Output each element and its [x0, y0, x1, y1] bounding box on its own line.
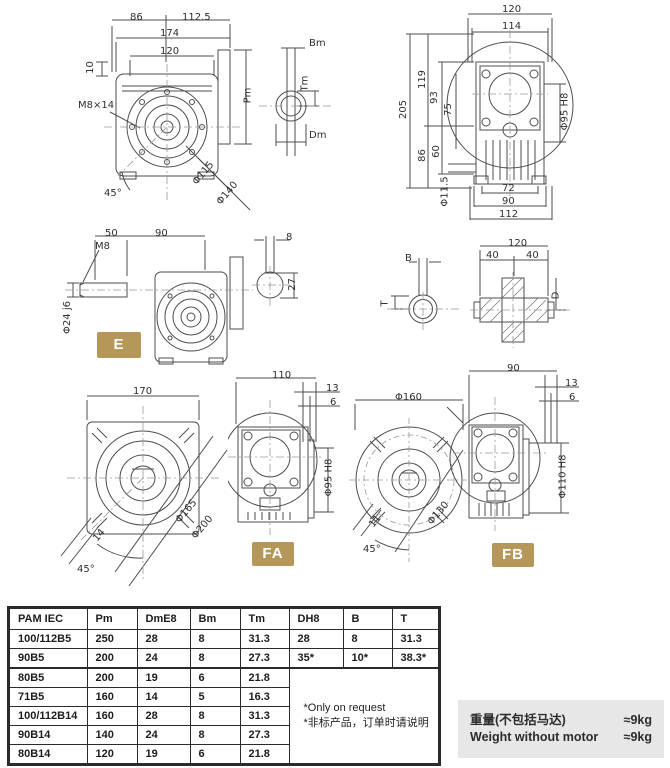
weight-label-en: Weight without motor — [470, 729, 598, 746]
label-e-badge: E — [97, 332, 141, 358]
dim-tm: Tm — [299, 76, 310, 92]
angle-45: 45° — [363, 544, 381, 555]
thread-label: M8×14 — [78, 100, 114, 111]
rear-flange-view: 86 112.5 174 120 10 M8×14 Pm 45° Φ115 Φ1… — [78, 12, 273, 226]
dim-72: 72 — [502, 183, 515, 194]
dim-bm: Bm — [309, 38, 326, 49]
fb-view: 90 13 6 Φ110 H8 FB — [445, 363, 670, 575]
table-cell: 200 — [87, 649, 137, 669]
table-cell: 24 — [137, 726, 190, 745]
motor-shaft-end-drawing — [253, 38, 368, 163]
dim-170: 170 — [133, 386, 152, 397]
table-cell: 27.3 — [240, 649, 289, 669]
table-cell: 160 — [87, 707, 137, 726]
dim-114: 114 — [502, 21, 521, 32]
shaft-24j6: Φ24 j6 — [62, 301, 73, 334]
pam-dimensions-table: PAM IEC Pm DmE8 Bm Tm DH8 B T 100/112B5 … — [8, 607, 440, 765]
dim-174: 174 — [160, 28, 179, 39]
label-fa-badge: FA — [252, 542, 294, 566]
catalog-page: 86 112.5 174 120 10 M8×14 Pm 45° Φ115 Φ1… — [0, 0, 670, 768]
table-cell: 19 — [137, 745, 190, 765]
dim-10: 10 — [85, 61, 96, 74]
side-view-e-drawing — [55, 228, 270, 370]
table-cell: 5 — [190, 688, 240, 707]
dim-13: 13 — [565, 378, 578, 389]
table-cell: 31.3 — [240, 707, 289, 726]
table-cell: 10* — [343, 649, 392, 669]
motor-face-drawing — [390, 4, 670, 226]
dim-205: 205 — [398, 100, 409, 119]
weight-label-cn: 重量(不包括马达) — [470, 712, 566, 729]
thread-m8: M8 — [95, 241, 110, 252]
table-cell: 28 — [137, 707, 190, 726]
dim-6: 6 — [569, 392, 575, 403]
dim-75: 75 — [443, 103, 454, 116]
table-cell: 38.3* — [392, 649, 439, 669]
table-cell: 16.3 — [240, 688, 289, 707]
table-cell: 27.3 — [240, 726, 289, 745]
header-t: T — [392, 608, 439, 630]
table-row: 100/112B5 250 28 8 31.3 28 8 31.3 — [9, 630, 439, 649]
table-row: 80B5 200 19 6 21.8 *Only on request *非标产… — [9, 668, 439, 688]
dim-d: D — [550, 292, 561, 300]
motor-shaft-end-view: Bm Tm Dm — [253, 38, 368, 163]
table-cell: 8 — [190, 707, 240, 726]
shaft-cross-section-view: 120 40 40 D — [468, 238, 573, 353]
table-cell: 90B5 — [9, 649, 87, 669]
table-cell: 19 — [137, 668, 190, 688]
table-cell: 100/112B5 — [9, 630, 87, 649]
dim-50: 50 — [105, 228, 118, 239]
weight-info-box: 重量(不包括马达) ≈9kg Weight without motor ≈9kg — [458, 700, 664, 758]
table-notes-cell: *Only on request *非标产品，订单时请说明 — [289, 668, 439, 764]
header-pam-iec: PAM IEC — [9, 608, 87, 630]
table-header-row: PAM IEC Pm DmE8 Bm Tm DH8 B T — [9, 608, 439, 630]
dim-86: 86 — [417, 149, 428, 162]
bore-end-view: B T — [383, 252, 468, 344]
dim-119: 119 — [417, 70, 428, 89]
table-cell: 250 — [87, 630, 137, 649]
header-dh8: DH8 — [289, 608, 343, 630]
table-cell: 6 — [190, 745, 240, 765]
header-pm: Pm — [87, 608, 137, 630]
dim-112-5: 112.5 — [182, 12, 211, 23]
table-cell: 8 — [190, 630, 240, 649]
table-row: 90B5 200 24 8 27.3 35* 10* 38.3* — [9, 649, 439, 669]
output-flange-view: 170 Φ165 Φ200 14 45° — [35, 378, 250, 590]
table-cell: 35* — [289, 649, 343, 669]
angle-45: 45° — [77, 564, 95, 575]
dim-40b: 40 — [526, 250, 539, 261]
table-cell: 120 — [87, 745, 137, 765]
table-cell: 90B14 — [9, 726, 87, 745]
header-tm: Tm — [240, 608, 289, 630]
table-cell: 8 — [343, 630, 392, 649]
dim-110: 110 — [272, 370, 291, 381]
flange-od-160: Φ160 — [395, 392, 422, 403]
bore-110h8: Φ110 H8 — [558, 454, 569, 498]
table-cell: 80B5 — [9, 668, 87, 688]
motor-face-view: 120 114 205 119 86 93 60 75 Φ11.5 Φ95 H8… — [390, 4, 670, 226]
table-cell: 28 — [289, 630, 343, 649]
note-non-standard-cn: *非标产品，订单时请说明 — [304, 716, 439, 731]
weight-value-en: ≈9kg — [624, 729, 652, 746]
bore-95h8: Φ95 H8 — [323, 459, 334, 497]
dim-dm: Dm — [309, 130, 326, 141]
dim-112: 112 — [499, 209, 518, 220]
label-fb-badge: FB — [492, 543, 534, 567]
dim-120: 120 — [508, 238, 527, 249]
dim-6: 6 — [330, 397, 336, 408]
dim-90: 90 — [502, 196, 515, 207]
table-cell: 140 — [87, 726, 137, 745]
dim-90: 90 — [155, 228, 168, 239]
table-cell: 31.3 — [392, 630, 439, 649]
table-cell: 160 — [87, 688, 137, 707]
table-cell: 14 — [137, 688, 190, 707]
shaft-section-small-view: 8 27 — [250, 232, 350, 337]
table-cell: 100/112B14 — [9, 707, 87, 726]
table-cell: 6 — [190, 668, 240, 688]
dim-b: B — [405, 253, 412, 264]
weight-row-en: Weight without motor ≈9kg — [470, 729, 652, 746]
dim-27: 27 — [287, 278, 298, 291]
dim-86: 86 — [130, 12, 143, 23]
hole-11-5: Φ11.5 — [440, 176, 451, 206]
shaft-section-small-drawing — [250, 232, 350, 337]
table-cell: 200 — [87, 668, 137, 688]
dim-93: 93 — [429, 91, 440, 104]
table-cell: 71B5 — [9, 688, 87, 707]
note-only-on-request: *Only on request — [304, 701, 439, 716]
weight-row-cn: 重量(不包括马达) ≈9kg — [470, 712, 652, 729]
angle-45: 45° — [104, 188, 122, 199]
dim-8: 8 — [286, 232, 292, 243]
header-b: B — [343, 608, 392, 630]
table-cell: 21.8 — [240, 745, 289, 765]
header-bm: Bm — [190, 608, 240, 630]
dim-40a: 40 — [486, 250, 499, 261]
dim-90: 90 — [507, 363, 520, 374]
table-cell: 80B14 — [9, 745, 87, 765]
table-cell: 8 — [190, 649, 240, 669]
table-cell: 24 — [137, 649, 190, 669]
dim-t: T — [380, 300, 391, 306]
table-cell: 8 — [190, 726, 240, 745]
output-flange-drawing — [35, 378, 250, 590]
side-view-e: 50 90 M8 Φ24 j6 E — [55, 228, 270, 370]
dim-120: 120 — [160, 46, 179, 57]
bore-95h8: Φ95 H8 — [559, 93, 570, 131]
bore-end-drawing — [383, 252, 468, 344]
table-cell: 21.8 — [240, 668, 289, 688]
dim-pm: Pm — [242, 88, 253, 104]
dim-120: 120 — [502, 4, 521, 15]
table-cell: 28 — [137, 630, 190, 649]
table-cell: 31.3 — [240, 630, 289, 649]
dim-13: 13 — [326, 383, 339, 394]
dim-60: 60 — [431, 145, 442, 158]
weight-value-cn: ≈9kg — [624, 712, 652, 729]
header-dme8: DmE8 — [137, 608, 190, 630]
